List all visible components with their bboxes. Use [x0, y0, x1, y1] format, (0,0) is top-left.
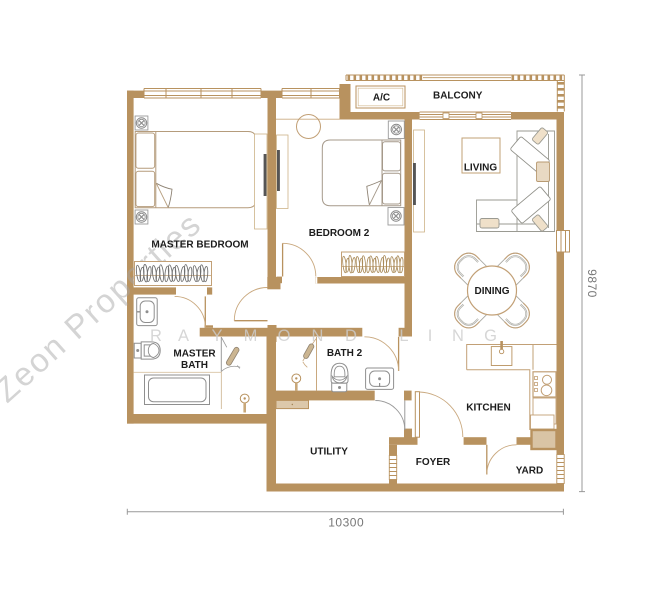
- svg-text:G: G: [484, 327, 497, 345]
- svg-text:L: L: [399, 327, 408, 345]
- svg-text:N: N: [452, 327, 464, 345]
- svg-text:A: A: [178, 327, 189, 345]
- svg-text:BEDROOM 2: BEDROOM 2: [309, 228, 370, 239]
- svg-text:MASTER: MASTER: [173, 349, 216, 360]
- svg-text:LIVING: LIVING: [464, 163, 498, 174]
- svg-text:A/C: A/C: [373, 93, 390, 104]
- svg-text:9870: 9870: [585, 269, 599, 298]
- svg-text:KITCHEN: KITCHEN: [466, 403, 510, 414]
- svg-text:BATH 2: BATH 2: [327, 348, 363, 359]
- svg-text:BATH: BATH: [181, 360, 208, 371]
- svg-text:FOYER: FOYER: [416, 457, 451, 468]
- svg-text:DINING: DINING: [475, 286, 510, 297]
- svg-text:D: D: [345, 327, 357, 345]
- svg-text:MASTER BEDROOM: MASTER BEDROOM: [151, 240, 248, 251]
- svg-text:O: O: [278, 327, 291, 345]
- svg-text:I: I: [428, 327, 433, 345]
- svg-text:BALCONY: BALCONY: [433, 91, 483, 102]
- svg-text:M: M: [244, 327, 258, 345]
- svg-text:UTILITY: UTILITY: [310, 447, 348, 458]
- svg-text:10300: 10300: [328, 516, 364, 530]
- svg-text:YARD: YARD: [516, 466, 543, 477]
